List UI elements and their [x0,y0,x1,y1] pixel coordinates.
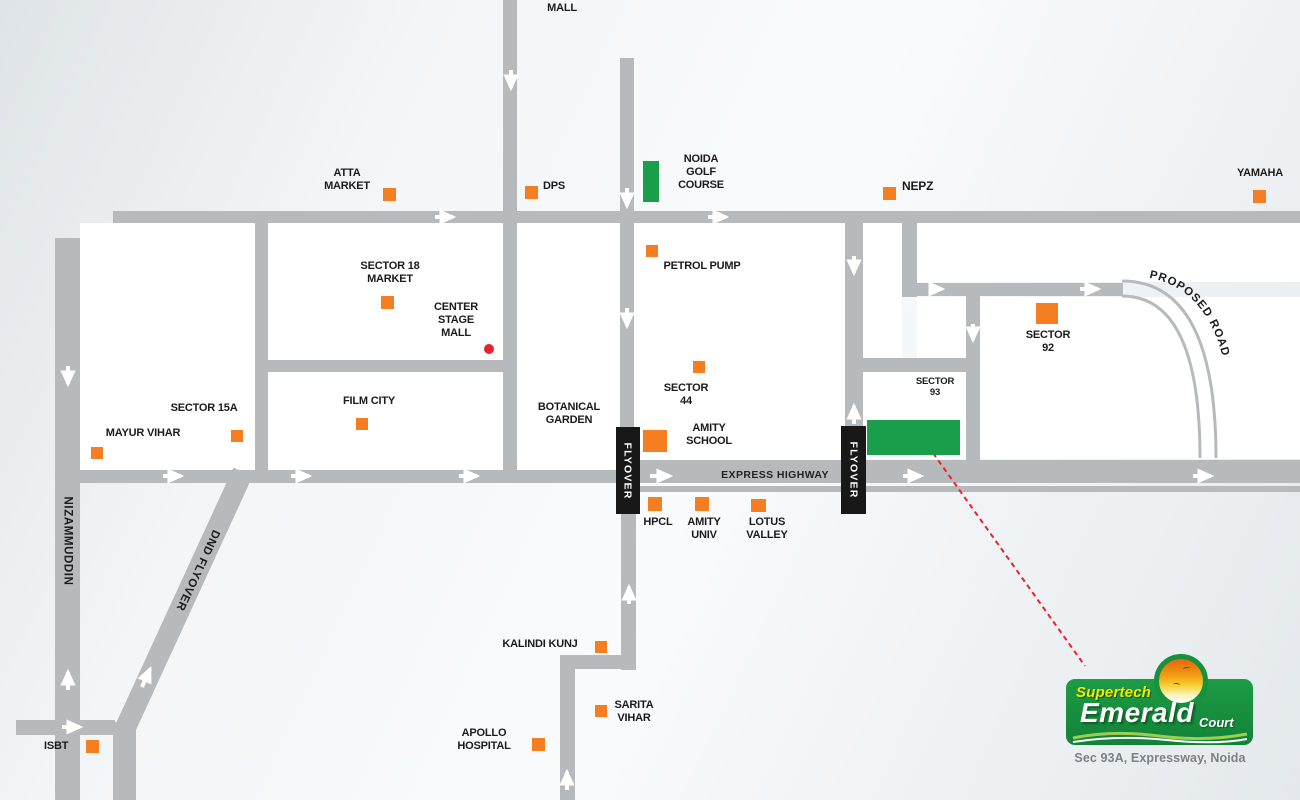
hpcl-label: HPCL [643,516,672,529]
lotus-valley-marker [751,499,766,512]
flyover-sign-west: FLYOVER [616,427,640,514]
kalindi-kunj-label: KALINDI KUNJ [502,638,577,651]
dps-label: DPS [543,180,565,193]
lotus-valley-label: LOTUS VALLEY [746,516,787,542]
flyover-sign-east-label: FLYOVER [848,441,860,498]
sector-18-market-marker [381,296,394,309]
amity-school-marker [643,430,667,452]
kalindi-kunj-marker [595,641,607,653]
atta-market-label: ATTA MARKET [324,167,370,193]
isbt-marker [86,740,99,753]
flyover-sign-east: FLYOVER [841,426,866,514]
hpcl-marker [648,497,662,511]
sector-44-label: SECTOR 44 [664,382,708,408]
film-city-marker [356,418,368,430]
flyover-sign-west-label: FLYOVER [622,442,634,499]
mayur-vihar-label: MAYUR VIHAR [106,427,180,440]
apollo-hospital-label: APOLLO HOSPITAL [457,727,510,753]
amity-univ-marker [695,497,709,511]
nizammuddin-road-label: NIZAMMUDDIN [60,496,73,585]
petrol-pump-label: PETROL PUMP [663,260,740,273]
sector-15a-marker [231,430,243,442]
sector-93-label: SECTOR 93 [916,376,954,398]
center-stage-mall-label: CENTER STAGE MALL [434,301,478,339]
sector-44-marker [693,361,705,373]
amity-school-label: AMITY SCHOOL [686,422,732,448]
mayur-vihar-marker [91,447,103,459]
nepz-marker [883,187,896,200]
dps-marker [525,186,538,199]
location-map: PROPOSED ROAD S [0,0,1300,800]
logo-project-suffix: Court [1199,715,1234,730]
sarita-vihar-label: SARITA VIHAR [615,699,654,725]
film-city-label: FILM CITY [343,395,395,408]
center-stage-mall-marker [484,344,494,354]
shoppria-mall-label: SHOPPRIA MALL [534,0,590,15]
sector-15a-label: SECTOR 15A [171,402,238,415]
logo-waves-decoration [1071,729,1249,745]
botanical-garden-label: BOTANICAL GARDEN [538,401,600,427]
atta-market-marker [383,188,396,201]
sector-18-market-label: SECTOR 18 MARKET [360,260,419,286]
logo-project-name: Emerald [1080,697,1194,729]
apollo-hospital-marker [532,738,545,751]
express-highway-label: EXPRESS HIGHWAY [721,469,829,481]
dnd-flyover-road-label: DND FLYOVER [172,527,221,612]
sector-93-marker [867,420,960,455]
sarita-vihar-marker [595,705,607,717]
yamaha-label: YAMAHA [1237,167,1283,180]
noida-golf-course-label: NOIDA GOLF COURSE [678,153,724,191]
petrol-pump-marker [646,245,658,257]
amity-univ-label: AMITY UNIV [687,516,720,542]
noida-golf-course-marker [643,161,659,202]
yamaha-marker [1253,190,1266,203]
sector-92-marker [1036,303,1058,324]
sector-92-label: SECTOR 92 [1026,329,1070,355]
logo-address-tagline: Sec 93A, Expressway, Noida [1060,751,1260,765]
nepz-label: NEPZ [902,180,933,194]
isbt-label: ISBT [44,740,68,753]
